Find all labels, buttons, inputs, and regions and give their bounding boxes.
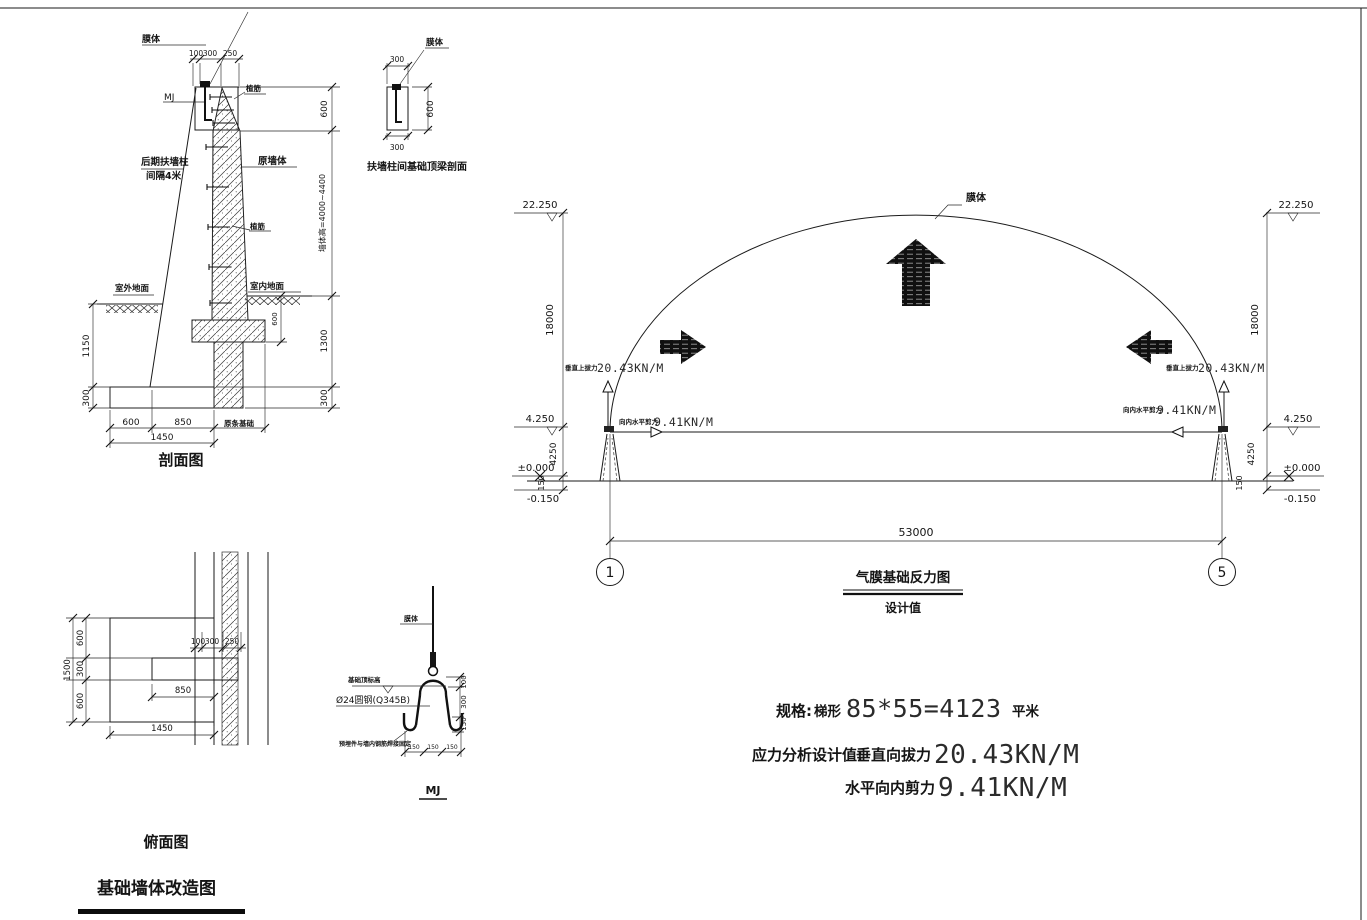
weld-note-label: 预埋件与墙内钢筋焊接固定: [339, 740, 411, 748]
dim-left-300: 300: [76, 661, 86, 677]
main-title-bar: [78, 909, 245, 914]
plan-view-title: 俯面图: [143, 833, 188, 851]
new-footing-slab: [110, 387, 214, 408]
dim-top-100: 100: [191, 637, 206, 646]
dim-left-600b: 600: [76, 693, 86, 709]
shear-force-value: 9.41KN/M: [654, 415, 713, 429]
indoor-ground-label: 室内地面: [250, 281, 285, 292]
support-clamp: [1218, 426, 1228, 432]
dim-top-300: 300: [203, 49, 218, 58]
dim-18000: 18000: [545, 304, 556, 336]
dim-bottom-150b: 150: [427, 744, 439, 751]
dim-bottom-150a: 150: [408, 744, 420, 751]
rod-membrane-label: 膜体: [403, 614, 419, 623]
shear-force-label: 向内水平剪力: [619, 417, 659, 426]
indoor-ground-hatch: [245, 297, 300, 305]
dome-caption: 气膜基础反力图: [855, 569, 951, 586]
uplift-force-label: 垂直上拔力: [1166, 363, 1199, 372]
dim-footing-depth: 600: [271, 312, 279, 325]
spec-unit-label: 平米: [1012, 703, 1040, 720]
original-footing-hatched: [192, 320, 265, 342]
dim-right-100: 100: [460, 675, 468, 688]
spec-shape-label: 梯形: [814, 703, 842, 720]
buttress-label-line2: 间隔4米: [146, 170, 182, 182]
mj-label: MJ: [164, 93, 174, 103]
membrane-label: 膜体: [966, 191, 987, 204]
dim-right-300: 300: [460, 695, 468, 708]
original-footing-label: 原条基础: [224, 418, 254, 428]
membrane-label: 膜体: [426, 37, 444, 48]
dim-right-600: 600: [320, 100, 330, 117]
outdoor-ground-hatch: [106, 305, 158, 313]
foundation-top-level-label: 基础顶标高: [347, 675, 381, 684]
dim-4250: 4250: [549, 442, 559, 465]
level-top: 22.250: [1279, 200, 1314, 211]
level-zero: ±0.000: [1283, 463, 1320, 474]
dim-bottom-300: 300: [390, 143, 405, 152]
planted-rebar-label-top: 植筋: [245, 83, 261, 93]
uplift-force-label: 垂直上拔力: [565, 363, 598, 372]
dim-bottom-1450: 1450: [151, 433, 174, 443]
outdoor-ground-label: 室外地面: [115, 283, 150, 294]
sheet-background: [0, 0, 1367, 920]
dim-left-1500: 1500: [63, 659, 73, 681]
mj-detail-caption: MJ: [425, 784, 440, 797]
round-bar-label: Ø24圆钢(Q345B): [336, 694, 410, 706]
uplift-value: 20.43KN/M: [934, 740, 1079, 770]
dim-bottom-600: 600: [122, 418, 139, 428]
dim-150: 150: [537, 475, 546, 490]
main-title: 基础墙体改造图: [96, 878, 216, 899]
spec-label: 规格:: [776, 702, 812, 720]
dim-4250: 4250: [1247, 442, 1257, 465]
dim-top-250: 250: [225, 637, 240, 646]
dim-right-600: 600: [426, 100, 436, 117]
dim-top-250: 250: [223, 49, 238, 58]
level-minus: -0.150: [1284, 494, 1316, 505]
dim-bottom-150c: 150: [446, 744, 458, 751]
dim-right-150: 150: [460, 717, 468, 730]
uplift-name: 垂直向拔力: [856, 746, 931, 764]
dim-left-600a: 600: [76, 630, 86, 646]
spec-area-value: 85*55=4123: [846, 694, 1002, 723]
dim-top-300: 300: [205, 637, 220, 646]
level-base: 4.250: [526, 414, 555, 425]
dim-left-300: 300: [82, 389, 92, 406]
dim-right-300: 300: [320, 389, 330, 406]
level-minus: -0.150: [527, 494, 559, 505]
axis-number-1: 1: [606, 565, 615, 581]
original-wall-label: 原墙体: [258, 155, 287, 167]
membrane-label: 膜体: [141, 33, 161, 45]
dome-subcaption: 设计值: [885, 600, 921, 615]
dim-bottom-850: 850: [174, 418, 191, 428]
buttress-label-line1: 后期扶墙柱: [141, 156, 189, 168]
dim-top-300: 300: [390, 55, 405, 64]
dim-left-1150: 1150: [82, 334, 92, 357]
original-footing-stem: [214, 342, 243, 408]
dim-bottom-1450: 1450: [151, 724, 173, 734]
wall-plan-hatch-band: [222, 552, 238, 745]
turnbuckle: [430, 652, 436, 667]
shear-force-value: 9.41KN/M: [1157, 403, 1216, 417]
shear-value: 9.41KN/M: [938, 773, 1067, 803]
dim-mid-850: 850: [175, 686, 191, 696]
level-top: 22.250: [523, 200, 558, 211]
dim-wall-height: 墙体高=4000~4400: [317, 174, 327, 252]
analysis-label: 应力分析设计值:: [752, 746, 863, 764]
beam-detail-title: 扶墙柱间基础顶梁剖面: [367, 160, 467, 173]
dim-18000: 18000: [1250, 304, 1261, 336]
dim-150: 150: [1235, 475, 1244, 490]
cad-drawing-canvas: 膜体 100 300 250 MJ 植筋 植筋 后期扶墙柱 间隔4米 原墙体 室…: [0, 0, 1367, 920]
dim-right-1300: 1300: [320, 329, 330, 352]
dim-span-53000: 53000: [899, 526, 934, 539]
shear-name: 水平向内剪力: [845, 779, 935, 797]
planted-rebar-label-mid: 植筋: [249, 221, 265, 231]
dim-top-100: 100: [189, 49, 204, 58]
cad-sheet: 膜体 100 300 250 MJ 植筋 植筋 后期扶墙柱 间隔4米 原墙体 室…: [0, 0, 1367, 920]
uplift-force-value: 20.43KN/M: [1198, 361, 1265, 375]
support-clamp: [604, 426, 614, 432]
axis-number-5: 5: [1218, 565, 1227, 581]
section-view-title: 剖面图: [158, 451, 203, 469]
uplift-force-value: 20.43KN/M: [597, 361, 664, 375]
level-base: 4.250: [1284, 414, 1313, 425]
